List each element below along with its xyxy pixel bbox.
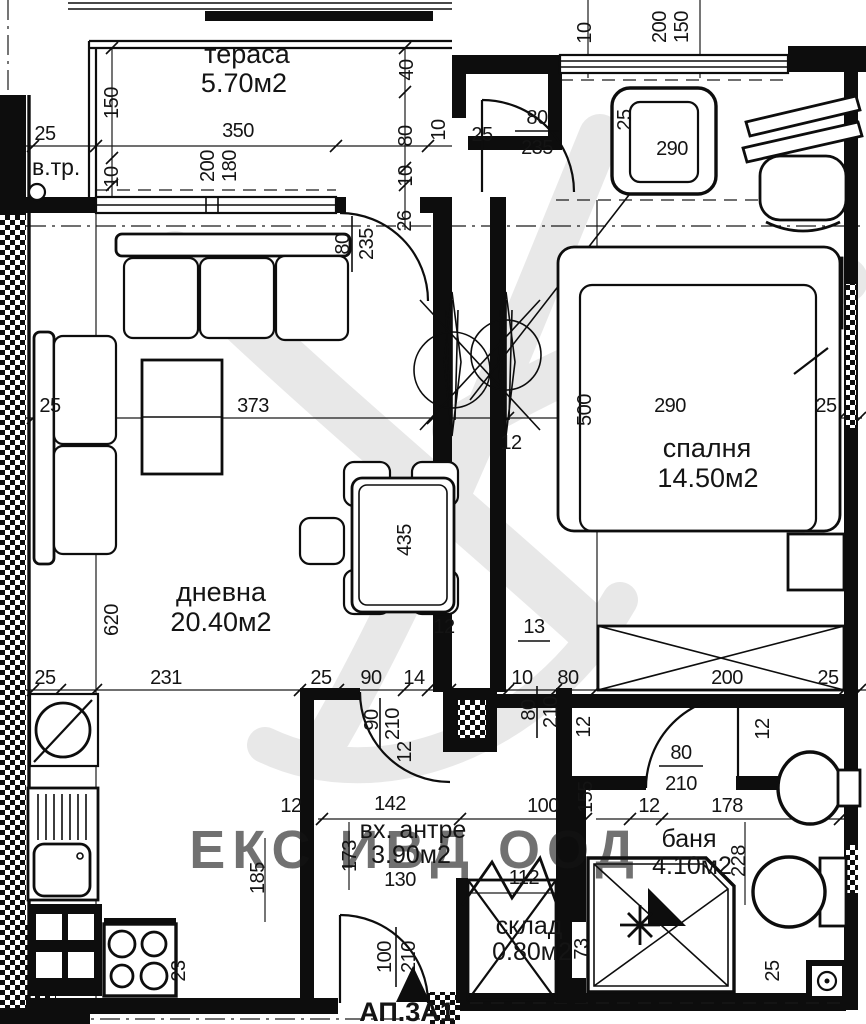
- svg-text:80: 80: [332, 233, 354, 255]
- dim: 26: [394, 210, 416, 232]
- svg-text:235: 235: [521, 137, 553, 159]
- dim: 12: [500, 432, 522, 454]
- dim: 142: [374, 793, 406, 815]
- dim: 25: [815, 395, 837, 417]
- dim: 290: [656, 138, 688, 160]
- svg-text:80: 80: [526, 107, 548, 129]
- dim: 180: [219, 150, 241, 182]
- living-name: дневна: [176, 577, 267, 607]
- svg-text:235: 235: [356, 228, 378, 260]
- vent-marker: [29, 184, 45, 200]
- dim: 40: [396, 59, 418, 81]
- dim: 25: [762, 960, 784, 982]
- dim: 155: [575, 781, 597, 813]
- boiler: [806, 960, 848, 1002]
- dim: 80: [395, 125, 417, 147]
- dim: 100: [527, 795, 559, 817]
- dim: 231: [150, 667, 182, 689]
- bath-area: 4.10м2: [652, 852, 732, 880]
- dim: 12: [433, 616, 455, 638]
- dim: 25: [614, 109, 636, 131]
- terrace-name: тераса: [204, 39, 291, 69]
- dim: 290: [654, 395, 686, 417]
- storage-name: склад: [496, 912, 563, 940]
- bedroom-name: спалня: [663, 433, 751, 463]
- svg-text:210: 210: [665, 773, 697, 795]
- dim: 373: [237, 395, 269, 417]
- bath-name: баня: [662, 825, 717, 853]
- dim: 90: [360, 667, 382, 689]
- dim: 25: [471, 124, 493, 146]
- dim: 10: [511, 667, 533, 689]
- dim: 500: [574, 394, 596, 426]
- bedroom-area: 14.50м2: [657, 463, 758, 493]
- dim: 10: [574, 22, 596, 44]
- toilet: [753, 857, 846, 927]
- dim: 200: [649, 11, 671, 43]
- svg-text:80: 80: [670, 742, 692, 764]
- dim: 200: [711, 667, 743, 689]
- dim: 12: [638, 795, 660, 817]
- vent-label: в.тр.: [32, 154, 80, 180]
- dim: 200: [197, 150, 219, 182]
- company-watermark: ЕКС ИВД ООД: [189, 820, 641, 880]
- dim: 80: [557, 667, 579, 689]
- dim: 13: [523, 616, 545, 638]
- dim: 350: [222, 120, 254, 142]
- dim: 12: [752, 718, 774, 740]
- dim: 23: [168, 960, 190, 982]
- dim: 25: [39, 395, 61, 417]
- dim: 25: [310, 667, 332, 689]
- dim: 10: [428, 119, 450, 141]
- dim: 228: [728, 845, 750, 877]
- apartment-label: АП.3А1: [359, 997, 455, 1024]
- dim: 10: [101, 166, 123, 188]
- bedroom-window: [560, 55, 788, 73]
- living-area: 20.40м2: [170, 607, 271, 637]
- dim: 73: [571, 938, 593, 960]
- dim: 25: [817, 667, 839, 689]
- dim: 25: [34, 123, 56, 145]
- dim: 12: [394, 741, 416, 763]
- svg-text:210: 210: [540, 696, 562, 728]
- dim: 435: [394, 524, 416, 556]
- terrace-window: [96, 197, 336, 213]
- floor-plan-canvas: тераса 5.70м2 дневна 20.40м2 спалня 14.5…: [0, 0, 866, 1024]
- terrace-area: 5.70м2: [201, 68, 287, 98]
- dim: 25: [34, 667, 56, 689]
- svg-text:210: 210: [398, 941, 420, 973]
- dim: 178: [711, 795, 743, 817]
- svg-text:210: 210: [382, 708, 404, 740]
- dim: 150: [101, 87, 123, 119]
- dim: 12: [280, 795, 302, 817]
- dim: 620: [101, 604, 123, 636]
- dim: 14: [403, 667, 425, 689]
- dim: 12: [573, 716, 595, 738]
- storage-area: 0.80м2: [492, 938, 572, 966]
- svg-text:100: 100: [374, 941, 396, 973]
- stove: [104, 918, 176, 996]
- dim: 150: [671, 11, 693, 43]
- dim: 10: [395, 165, 417, 187]
